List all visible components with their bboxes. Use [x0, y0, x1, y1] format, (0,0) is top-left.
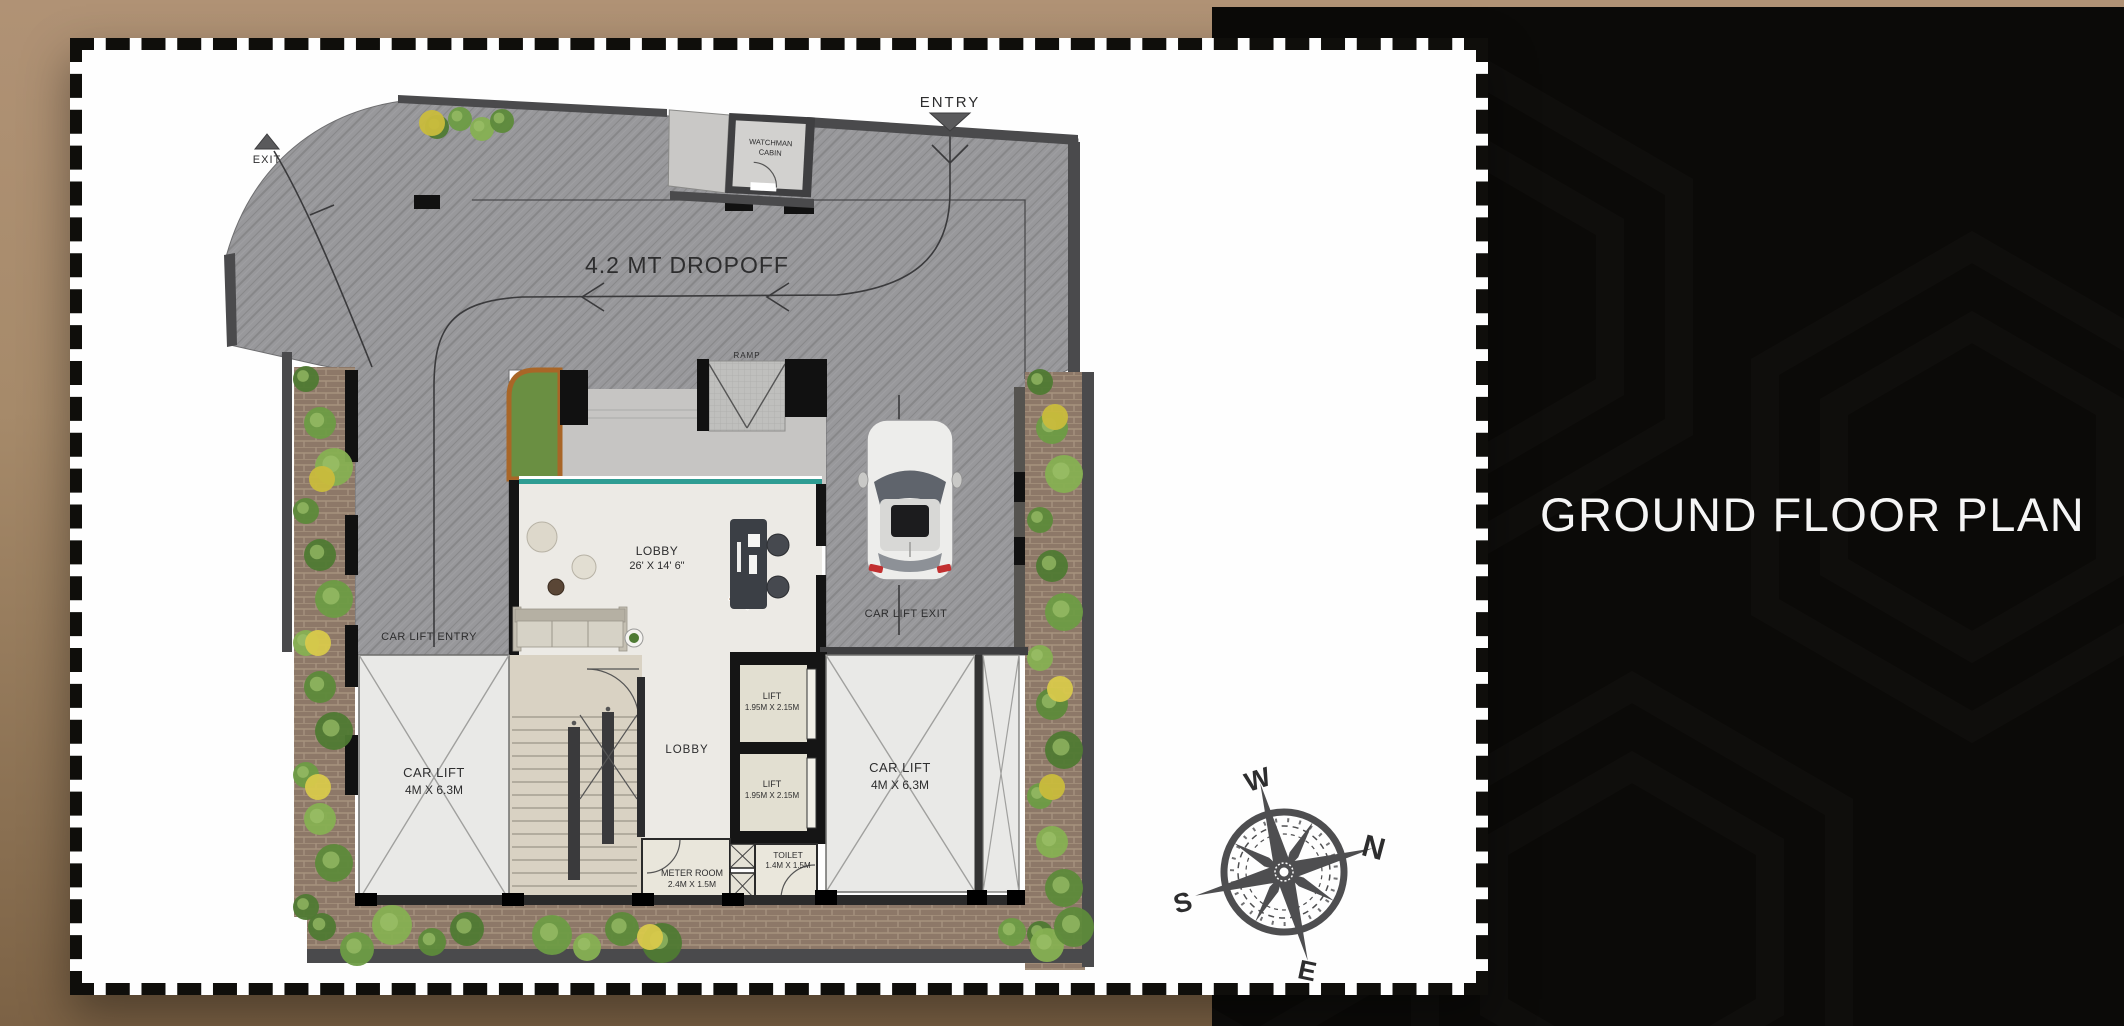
- car-lift-right-name: CAR LIFT: [869, 760, 931, 775]
- watchman-cabin-label-2: CABIN: [759, 148, 782, 158]
- staircase: [509, 655, 645, 900]
- lift-upper-name: LIFT: [763, 691, 782, 701]
- car-icon: [858, 420, 962, 580]
- floor-plan: WATCHMAN CABIN: [222, 87, 1102, 982]
- entry-label: ENTRY: [920, 94, 981, 111]
- plan-card: WATCHMAN CABIN: [70, 38, 1488, 995]
- office-chair: [767, 534, 789, 556]
- compass-icon: W N S E: [1162, 754, 1412, 994]
- lift-block: [730, 652, 827, 844]
- lift-lower-dim: 1.95M X 2.15M: [745, 791, 800, 800]
- lobby-small-label: LOBBY: [665, 744, 708, 756]
- compass-n: N: [1358, 828, 1389, 868]
- page-title: GROUND FLOOR PLAN: [1540, 487, 2080, 542]
- compass-s: S: [1170, 886, 1195, 920]
- pouf: [527, 522, 557, 552]
- meter-room-name: METER ROOM: [661, 868, 723, 878]
- dropoff-label: 4.2 MT DROPOFF: [585, 252, 789, 278]
- glass-wall: [519, 479, 822, 484]
- toilet-name: TOILET: [773, 850, 803, 860]
- duct-shafts: [730, 844, 755, 899]
- lobby-main-name: LOBBY: [636, 544, 679, 558]
- compass-w: W: [1241, 761, 1275, 798]
- page-title-text: GROUND FLOOR PLAN: [1540, 488, 2085, 541]
- presentation-slide: { "title": "GROUND FLOOR PLAN", "plan": …: [0, 0, 2124, 1026]
- compass: W N S E: [1162, 754, 1412, 994]
- car-lift-right-dim: 4M X 6.3M: [871, 778, 929, 792]
- sofa-icon: [513, 607, 627, 651]
- floor-plan-svg: WATCHMAN CABIN: [222, 87, 1102, 982]
- car-lift-entry-label: CAR LIFT ENTRY: [381, 631, 477, 643]
- car-lift-left-dim: 4M X 6.3M: [405, 783, 463, 797]
- ramp-label: RAMP: [733, 351, 760, 360]
- lift-lower-name: LIFT: [763, 779, 782, 789]
- lift-upper-dim: 1.95M X 2.15M: [745, 703, 800, 712]
- toilet-dim: 1.4M X 1.5M: [765, 861, 811, 870]
- office-chair: [767, 576, 789, 598]
- watchman-cabin: WATCHMAN CABIN: [665, 110, 815, 198]
- pouf: [572, 555, 596, 579]
- car-lift-exit-label: CAR LIFT EXIT: [865, 608, 948, 620]
- lobby-main-dim: 26' X 14' 6": [629, 560, 684, 572]
- side-table: [548, 579, 564, 595]
- exit-label: EXIT: [253, 154, 281, 166]
- compass-e: E: [1295, 954, 1319, 987]
- car-lift-left-name: CAR LIFT: [403, 765, 465, 780]
- meter-room-dim: 2.4M X 1.5M: [668, 879, 716, 889]
- exit-marker: EXIT: [253, 134, 281, 166]
